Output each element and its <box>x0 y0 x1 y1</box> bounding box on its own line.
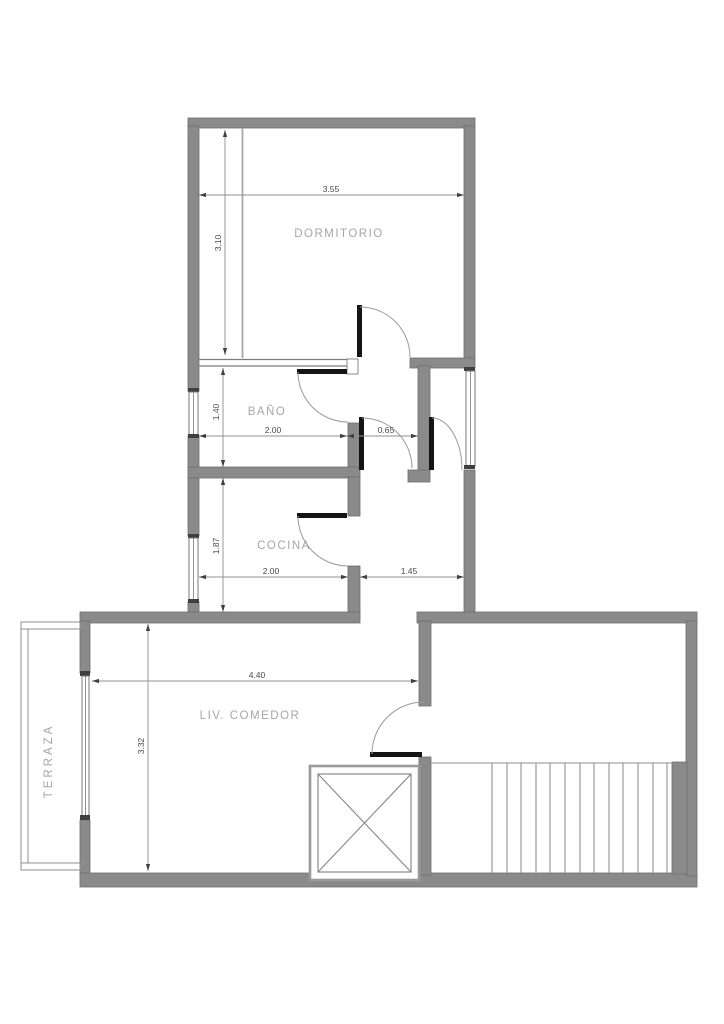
window-cap <box>188 599 199 603</box>
door-entrance <box>370 702 424 757</box>
window-cap <box>80 815 90 820</box>
room-label-cocina: COCINA <box>257 540 311 552</box>
wall-elevator-side <box>419 757 431 875</box>
wall-cocina-east-lower <box>348 566 360 616</box>
window-vestibule <box>464 367 475 469</box>
door-swing-arc <box>298 372 348 422</box>
room-label-living: LIV. COMEDOR <box>200 710 301 722</box>
door-bano <box>297 369 348 422</box>
door-leaf <box>297 369 347 374</box>
window-cap <box>188 534 199 538</box>
dimension-value-living-width: 4.40 <box>249 670 266 680</box>
dimension-value-hall-passage: 0.65 <box>378 425 395 435</box>
wall-bano-east <box>348 423 360 468</box>
wall-top <box>188 118 475 128</box>
floor-plan: 3.55 3.10 1.40 2.00 0.65 1.87 2.00 1.45 … <box>0 0 724 1024</box>
dimension-value-bano-depth: 1.40 <box>211 403 221 420</box>
wall-living-west-upper <box>80 621 90 673</box>
railing-top <box>21 622 80 629</box>
door-dormitorio <box>357 305 410 357</box>
wall-right-upper <box>464 126 475 359</box>
dimension-value-cocina-depth: 1.87 <box>211 537 221 554</box>
window-cap <box>188 388 199 392</box>
dimension-value-dormitorio-width: 3.55 <box>323 184 340 194</box>
dimension-value-entry-hall: 1.45 <box>401 566 418 576</box>
railing-left <box>21 622 28 870</box>
window-cap <box>464 367 475 371</box>
wall-right-mid <box>464 470 475 615</box>
floor-plan-canvas: 3.55 3.10 1.40 2.00 0.65 1.87 2.00 1.45 … <box>0 0 724 1024</box>
window-cap <box>188 434 199 438</box>
door-jamb <box>347 359 358 374</box>
wall-left-mid <box>188 436 199 536</box>
wall-vestibule-column <box>418 366 430 471</box>
door-leaf <box>429 417 434 470</box>
wall-left-upper <box>188 126 199 391</box>
door-leaf <box>357 305 362 357</box>
door-leaf <box>297 513 347 518</box>
window-cap <box>80 671 90 676</box>
dimension-value-living-depth: 3.32 <box>136 737 146 754</box>
door-vestibule <box>429 417 462 470</box>
wall-living-west-lower <box>80 820 90 875</box>
wall-cocina-east-upper <box>348 477 360 516</box>
railing-bottom <box>21 863 80 870</box>
wall-living-top-left <box>80 612 360 623</box>
room-label-bano: BAÑO <box>248 405 287 418</box>
window-bano <box>188 388 199 438</box>
wall-right-lower <box>686 621 697 876</box>
wall-stair-end-block <box>672 762 687 874</box>
wall-entry-stub <box>419 621 431 706</box>
dimensions: 3.55 3.10 1.40 2.00 0.65 1.87 2.00 1.45 … <box>92 130 464 871</box>
stairs <box>431 763 686 873</box>
room-label-dormitorio: DORMITORIO <box>294 228 384 240</box>
door-swing-arc <box>372 702 424 754</box>
wall-living-top-right <box>417 612 697 623</box>
wall-column-foot <box>408 470 430 482</box>
door-swing-arc <box>432 418 462 470</box>
door-swing-arc <box>360 307 410 357</box>
elevator-shaft <box>310 766 419 880</box>
window-terraza-door <box>80 671 90 820</box>
room-label-terraza: TERRAZA <box>43 724 55 799</box>
window-cocina <box>188 534 199 603</box>
dimension-value-bano-width: 2.00 <box>265 425 282 435</box>
dimension-value-cocina-width: 2.00 <box>263 566 280 576</box>
door-leaf <box>370 752 422 757</box>
window-cap <box>464 465 475 469</box>
wall-bano-cocina-divider <box>188 467 360 478</box>
dimension-value-dormitorio-depth: 3.10 <box>213 234 223 251</box>
door-leaf <box>359 417 364 470</box>
